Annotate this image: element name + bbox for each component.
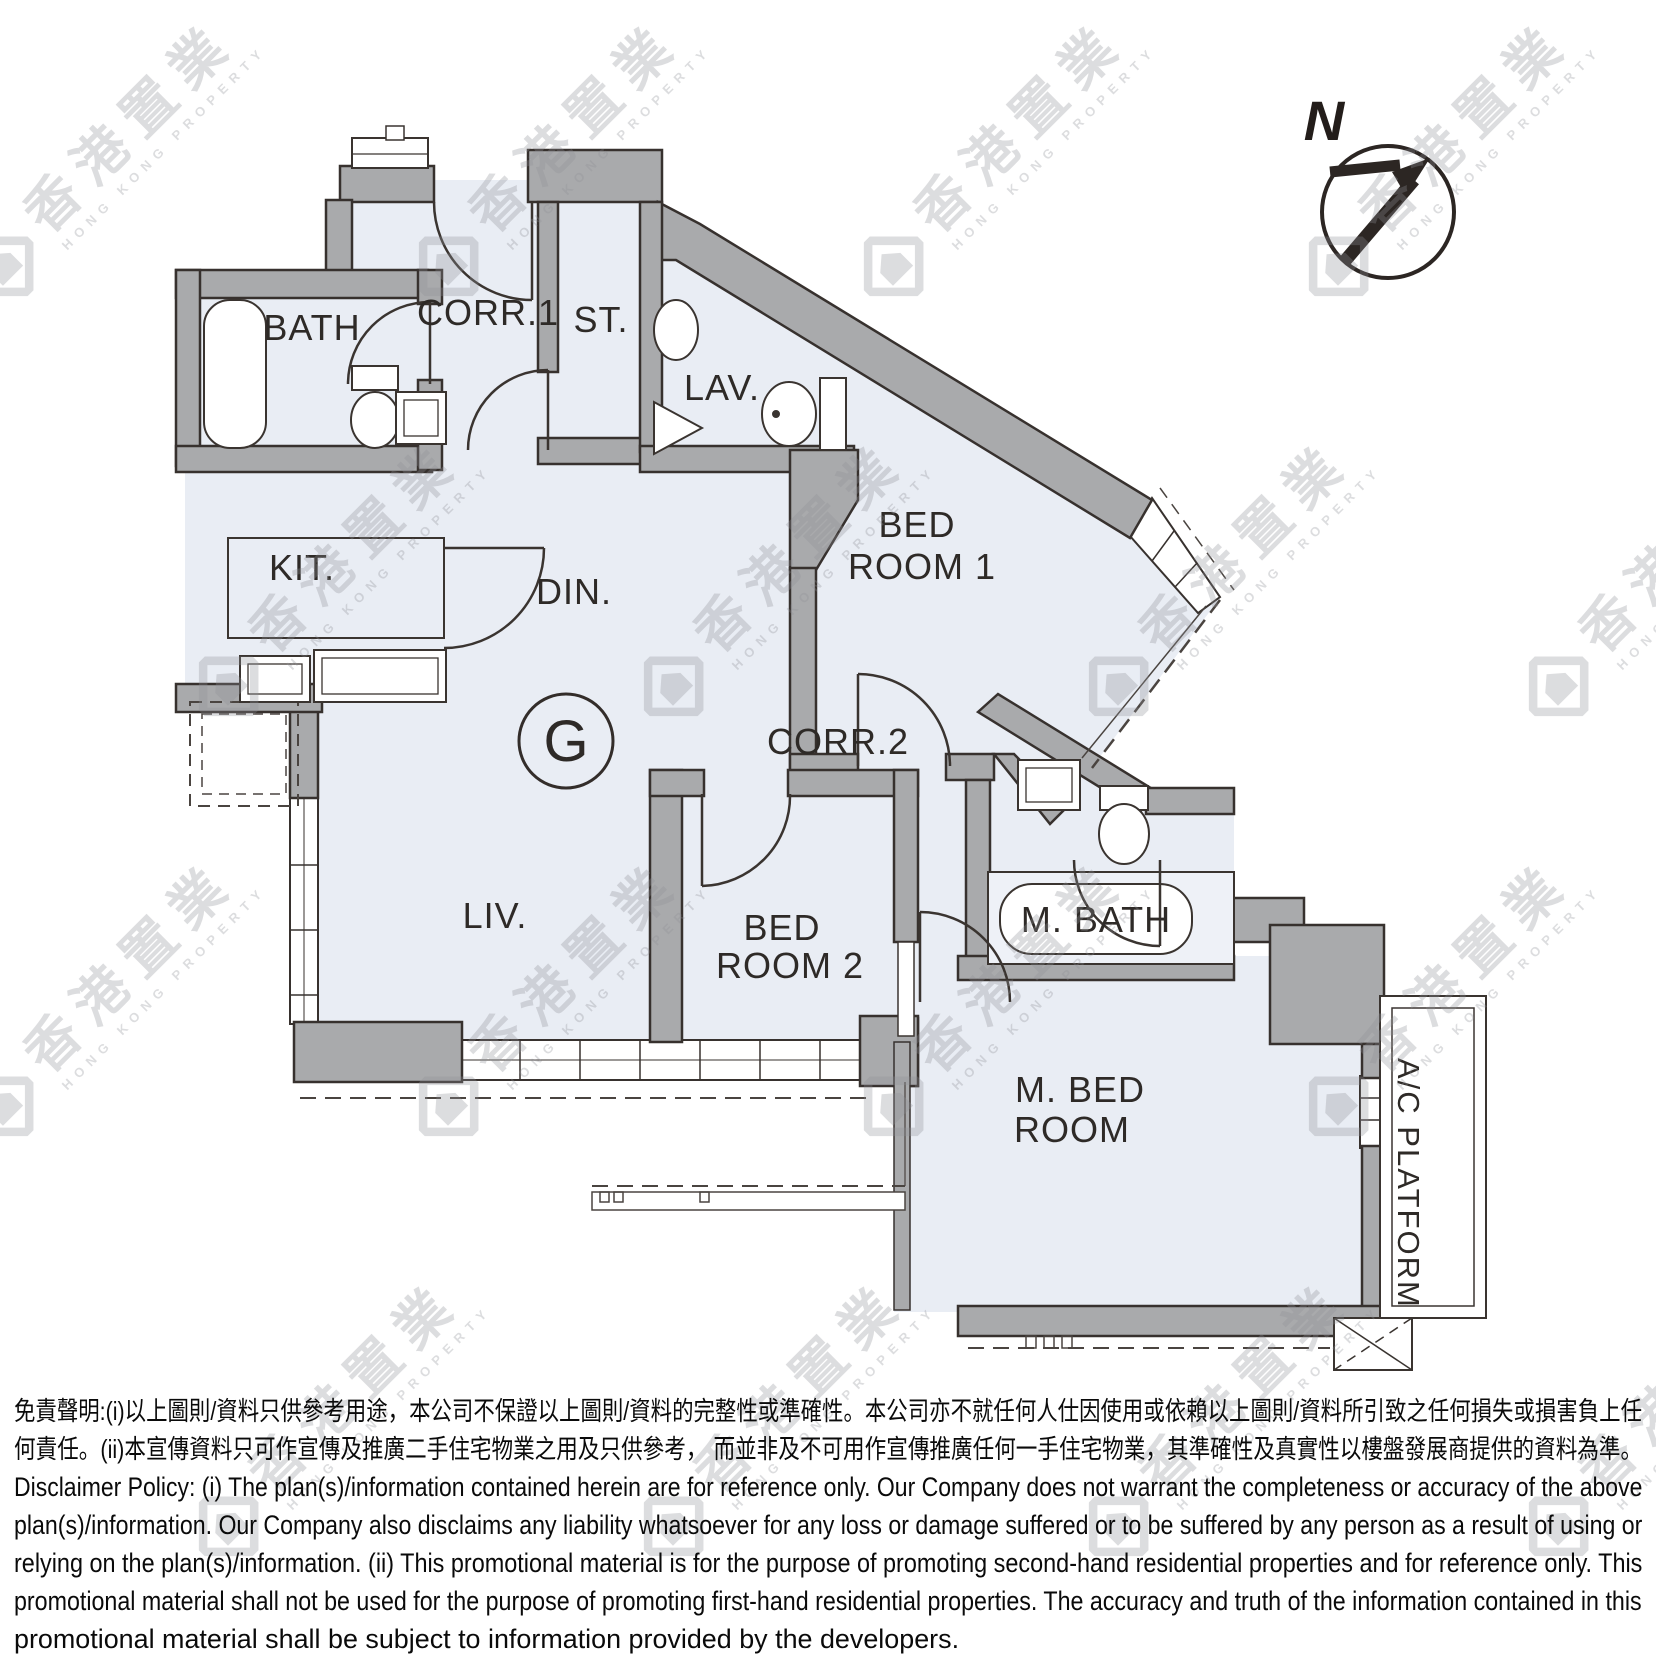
disclaimer-line: plan(s)/information. Our Company also di… [14, 1506, 1414, 1544]
room-label-bedroom1: BED [878, 504, 955, 545]
room-label-corr2: CORR.2 [767, 721, 909, 762]
disclaimer: 免責聲明:(i)以上圖則/資料只供參考用途，本公司不保證以上圖則/資料的完整性或… [14, 1392, 1648, 1658]
room-label-mbedroom: ROOM [1014, 1109, 1130, 1150]
disclaimer-line: relying on the plan(s)/information. (ii)… [14, 1544, 1431, 1582]
room-label-din: DIN. [536, 571, 612, 612]
room-label-lav: LAV. [684, 367, 760, 408]
toilet-icon [351, 392, 399, 448]
room-label-mbath: M. BATH [1021, 899, 1171, 940]
room-label-bath: BATH [263, 307, 360, 348]
unit-label: G [543, 709, 588, 774]
room-label-kit: KIT. [269, 547, 335, 588]
disclaimer-line: 免責聲明:(i)以上圖則/資料只供參考用途，本公司不保證以上圖則/資料的完整性或… [14, 1392, 1360, 1430]
toilet-tank-icon [352, 366, 398, 390]
room-label-mbedroom: M. BED [1015, 1069, 1145, 1110]
disclaimer-line: 何責任。(ii)本宣傳資料只可作宣傳及推廣二手住宅物業之用及只供參考， 而並非及… [14, 1430, 1371, 1468]
room-label-corr1: CORR.1 [417, 292, 559, 333]
room-label-bedroom1: ROOM 1 [848, 546, 996, 587]
room-label-st: ST. [573, 299, 628, 340]
bathtub-icon [204, 300, 266, 448]
floor-plan-page: G N BATH CORR.1 ST. LAV. KIT. DIN. BED R… [0, 0, 1656, 1680]
disclaimer-line: promotional material shall be subject to… [14, 1620, 1642, 1658]
lav-basin-icon [654, 300, 698, 360]
disclaimer-line: promotional material shall not be used f… [14, 1582, 1421, 1620]
compass-north-label: N [1304, 89, 1346, 152]
room-label-bedroom2: BED [743, 907, 820, 948]
entrance-landing [352, 126, 428, 168]
room-label-ac-platform: A/C PLATFORM [1391, 1058, 1426, 1309]
compass: N [1304, 89, 1454, 278]
room-label-liv: LIV. [463, 895, 528, 936]
disclaimer-line: Disclaimer Policy: (i) The plan(s)/infor… [14, 1468, 1405, 1506]
room-label-bedroom2: ROOM 2 [716, 945, 864, 986]
m-toilet-icon [1099, 804, 1149, 864]
lav-toilet-icon [762, 382, 816, 446]
lav-toilet-tank-icon [820, 378, 846, 450]
